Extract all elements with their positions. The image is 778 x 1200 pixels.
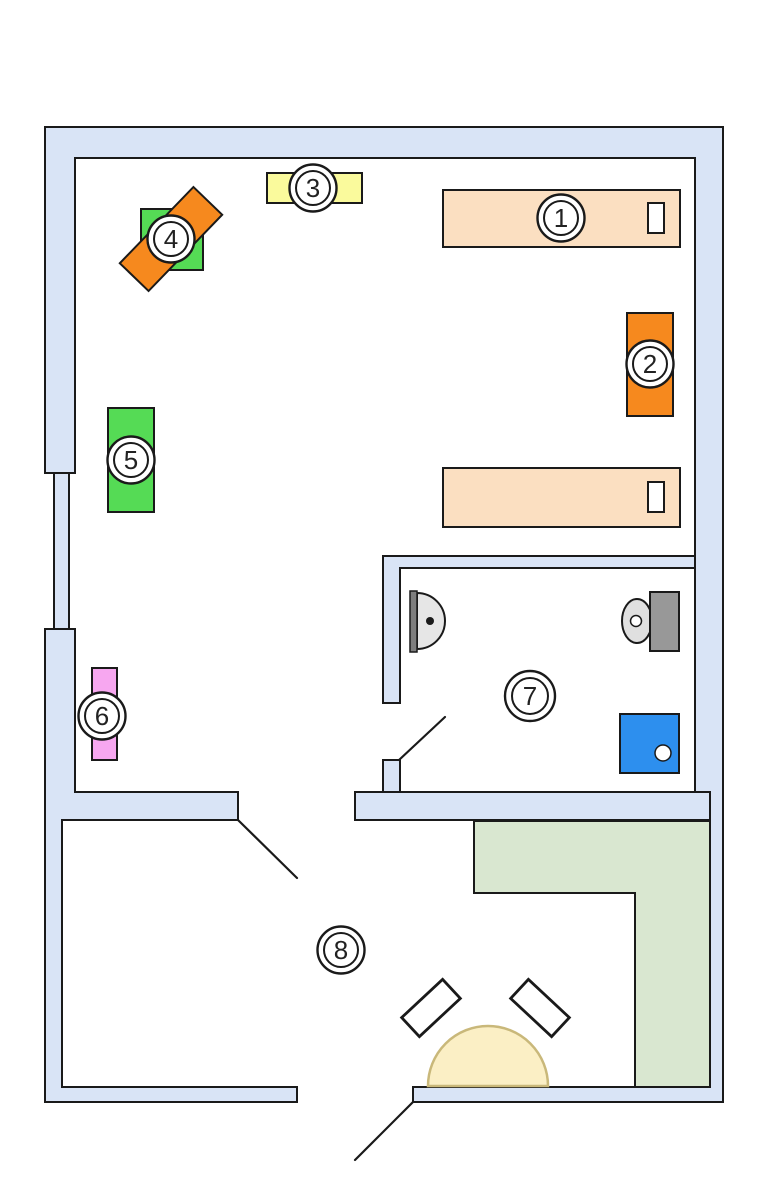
marker-5-label: 5 bbox=[124, 445, 138, 475]
marker-3: 3 bbox=[290, 165, 337, 212]
bathroom-door-swing bbox=[399, 717, 445, 760]
marker-6: 6 bbox=[79, 693, 126, 740]
marker-8-label: 8 bbox=[334, 935, 348, 965]
bathroom-bottom-wall bbox=[355, 792, 710, 820]
shower-drain bbox=[655, 745, 671, 761]
closet-door-swing bbox=[238, 820, 297, 878]
entrance-door-swing bbox=[355, 1102, 413, 1160]
shower bbox=[620, 714, 679, 773]
marker-4: 4 bbox=[148, 216, 195, 263]
half-round-table bbox=[428, 1026, 548, 1086]
marker-1-label: 1 bbox=[554, 203, 568, 233]
floor-plan-page: 1 2 3 4 5 bbox=[0, 0, 778, 1200]
chair-left bbox=[402, 979, 461, 1036]
toilet-tank bbox=[650, 592, 679, 651]
marker-5: 5 bbox=[108, 437, 155, 484]
dining-area bbox=[402, 979, 570, 1086]
floor-plan: 1 2 3 4 5 bbox=[0, 0, 778, 1200]
sink-drain-dot bbox=[426, 617, 434, 625]
marker-7: 7 bbox=[505, 671, 555, 721]
toilet-flush-dot bbox=[631, 616, 642, 627]
marker-8: 8 bbox=[318, 927, 365, 974]
lower-left-wall bbox=[45, 629, 297, 1102]
sink-wall-bar bbox=[410, 591, 417, 652]
marker-1: 1 bbox=[538, 195, 585, 242]
bed-2 bbox=[443, 468, 680, 527]
bed-2-pillow bbox=[648, 482, 664, 512]
marker-7-label: 7 bbox=[523, 681, 537, 711]
chair-right bbox=[511, 979, 570, 1036]
marker-2: 2 bbox=[627, 341, 674, 388]
marker-3-label: 3 bbox=[306, 173, 320, 203]
marker-4-label: 4 bbox=[164, 224, 178, 254]
window-left-wall bbox=[54, 473, 69, 629]
marker-6-label: 6 bbox=[95, 701, 109, 731]
marker-2-label: 2 bbox=[643, 349, 657, 379]
bed-1-pillow bbox=[648, 203, 664, 233]
bathroom-wall-stub bbox=[383, 760, 400, 792]
